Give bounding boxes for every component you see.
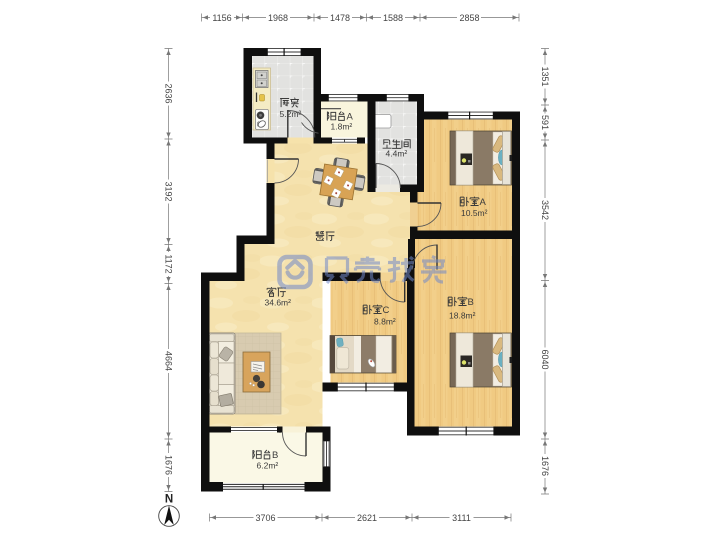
svg-text:3706: 3706: [255, 513, 275, 523]
svg-text:N: N: [165, 494, 173, 506]
svg-text:3542: 3542: [540, 200, 550, 220]
svg-text:C: C: [383, 305, 390, 316]
svg-text:B: B: [272, 450, 278, 461]
svg-text:5.2m²: 5.2m²: [280, 109, 302, 119]
svg-text:2636: 2636: [164, 83, 174, 103]
svg-text:8.8m²: 8.8m²: [374, 317, 396, 327]
svg-text:A: A: [480, 197, 487, 208]
svg-text:18.8m²: 18.8m²: [449, 311, 476, 321]
svg-text:2858: 2858: [459, 13, 479, 23]
svg-text:10.5m²: 10.5m²: [461, 208, 488, 218]
svg-text:1172: 1172: [164, 254, 174, 273]
svg-text:591: 591: [540, 115, 550, 130]
svg-text:2621: 2621: [357, 513, 377, 523]
svg-text:1676: 1676: [540, 456, 550, 476]
svg-text:6.2m²: 6.2m²: [257, 461, 279, 471]
svg-text:1351: 1351: [540, 66, 550, 86]
svg-text:B: B: [468, 297, 474, 308]
svg-text:4664: 4664: [164, 351, 174, 371]
svg-text:3111: 3111: [452, 513, 471, 523]
svg-text:1676: 1676: [164, 455, 174, 475]
svg-text:1156: 1156: [212, 13, 231, 23]
svg-text:6040: 6040: [540, 349, 550, 369]
svg-text:1.8m²: 1.8m²: [331, 122, 353, 132]
svg-text:1968: 1968: [268, 13, 288, 23]
svg-text:4.4m²: 4.4m²: [386, 149, 408, 159]
svg-text:1478: 1478: [330, 13, 350, 23]
svg-text:34.6m²: 34.6m²: [265, 298, 292, 308]
svg-text:1588: 1588: [383, 13, 403, 23]
svg-text:3192: 3192: [164, 181, 174, 201]
